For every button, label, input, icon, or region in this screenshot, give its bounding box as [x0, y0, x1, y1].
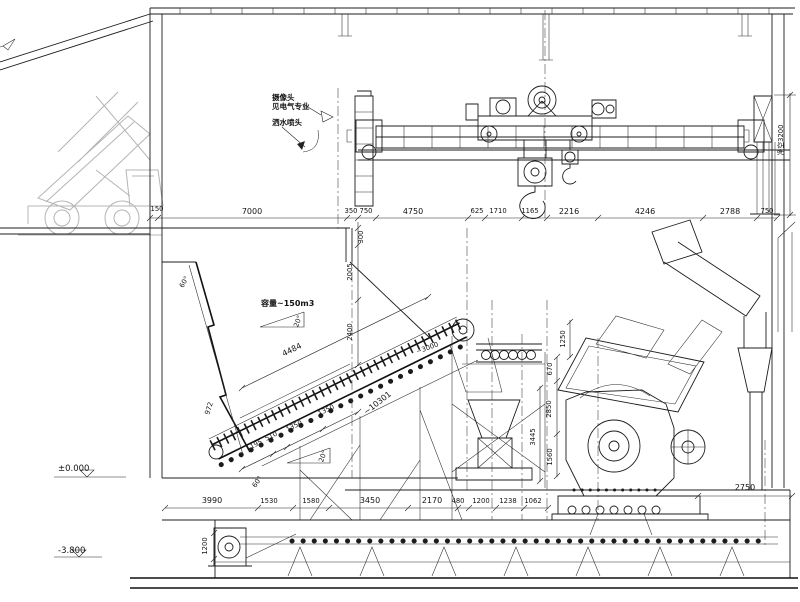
label-note-capacity: 容量~150m3 — [260, 298, 314, 308]
label-dim-1530: 1530 — [260, 497, 277, 505]
label-dim-2788: 2788 — [720, 207, 740, 216]
label-dim-3450: 3450 — [360, 496, 380, 505]
label-dim-1560: 1560 — [546, 448, 554, 465]
crusher — [552, 316, 722, 535]
sprinkler-icon — [297, 141, 305, 150]
label-dim-1238: 1238 — [499, 497, 516, 505]
label-dim-972: 972 — [203, 401, 215, 416]
foundation-and-pit — [130, 478, 798, 588]
label-dim-150: 150 — [151, 205, 164, 213]
label-dim-3445: 3445 — [529, 428, 537, 445]
label-dim-1350-a: 1350 — [285, 419, 304, 434]
label-dim-1195: 1195 — [245, 438, 264, 453]
label-dim-1200-b: 1200 — [201, 537, 209, 554]
label-elev-zero: ±0.000 — [58, 464, 89, 474]
label-angle-20-lower: 20° — [317, 449, 329, 463]
label-dim-1165: 1165 — [521, 207, 538, 215]
label-dim-4484: 4484 — [281, 341, 303, 358]
label-dim-750-a: 750 — [360, 207, 373, 215]
label-dim-1580: 1580 — [302, 497, 319, 505]
label-dim-1250: 1250 — [559, 330, 567, 347]
elevation-marks — [54, 470, 126, 557]
label-dim-7000: 7000 — [242, 207, 262, 216]
label-dim-2005: 2005 — [346, 263, 354, 280]
label-angle-60-upper: 60° — [178, 275, 191, 289]
label-dim-4246: 4246 — [635, 207, 655, 216]
discharge-chute-and-screen — [452, 336, 545, 488]
label-angle-60-lower: 60° — [251, 475, 264, 489]
label-dim-300: 300 — [357, 231, 365, 244]
label-dim-670: 670 — [546, 363, 554, 376]
label-note-sprinkler: 洒水喷头 — [272, 117, 302, 127]
section-drawing: 1507000350750475062517101165221642462788… — [0, 0, 800, 602]
label-angle-20-upper: 20° — [292, 314, 304, 328]
duct-work — [652, 220, 795, 490]
label-dim-4750: 4750 — [403, 207, 423, 216]
label-dim-350: 350 — [345, 207, 358, 215]
label-dim-2850: 2850 — [545, 400, 553, 417]
label-dim-10301: ~10301 — [362, 390, 393, 417]
overhead-crane — [347, 86, 790, 218]
label-dim-1350-b: 1350 — [317, 403, 336, 418]
label-dim-2170: 2170 — [422, 496, 442, 505]
label-dim-625: 625 — [471, 207, 484, 215]
label-dim-1200-a: 1200 — [472, 497, 489, 505]
drawing-sheet: 1507000350750475062517101165221642462788… — [0, 0, 800, 602]
label-dim-750-b: 750 — [761, 207, 774, 215]
label-dim-1710: 1710 — [489, 207, 506, 215]
label-dim-2216: 2216 — [559, 207, 579, 216]
dump-truck-sketch — [18, 92, 163, 235]
label-note-camera-1: 摄像头 — [272, 92, 295, 102]
labels-layer: 1507000350750475062517101165221642462788… — [58, 92, 785, 556]
label-dim-3990: 3990 — [202, 496, 222, 505]
label-dim-2750: 2750 — [735, 483, 755, 492]
label-note-camera-2: 见电气专业 — [272, 101, 310, 111]
label-dim-2400: 2400 — [346, 323, 354, 340]
label-dim-clearance: 净空3200 — [776, 125, 785, 156]
building-structure — [0, 8, 795, 488]
label-dim-480: 480 — [452, 497, 465, 505]
label-dim-1062: 1062 — [524, 497, 541, 505]
dimension-lines — [54, 92, 796, 562]
camera-icon — [321, 111, 333, 122]
label-elev-pit: -3.800 — [58, 546, 85, 556]
